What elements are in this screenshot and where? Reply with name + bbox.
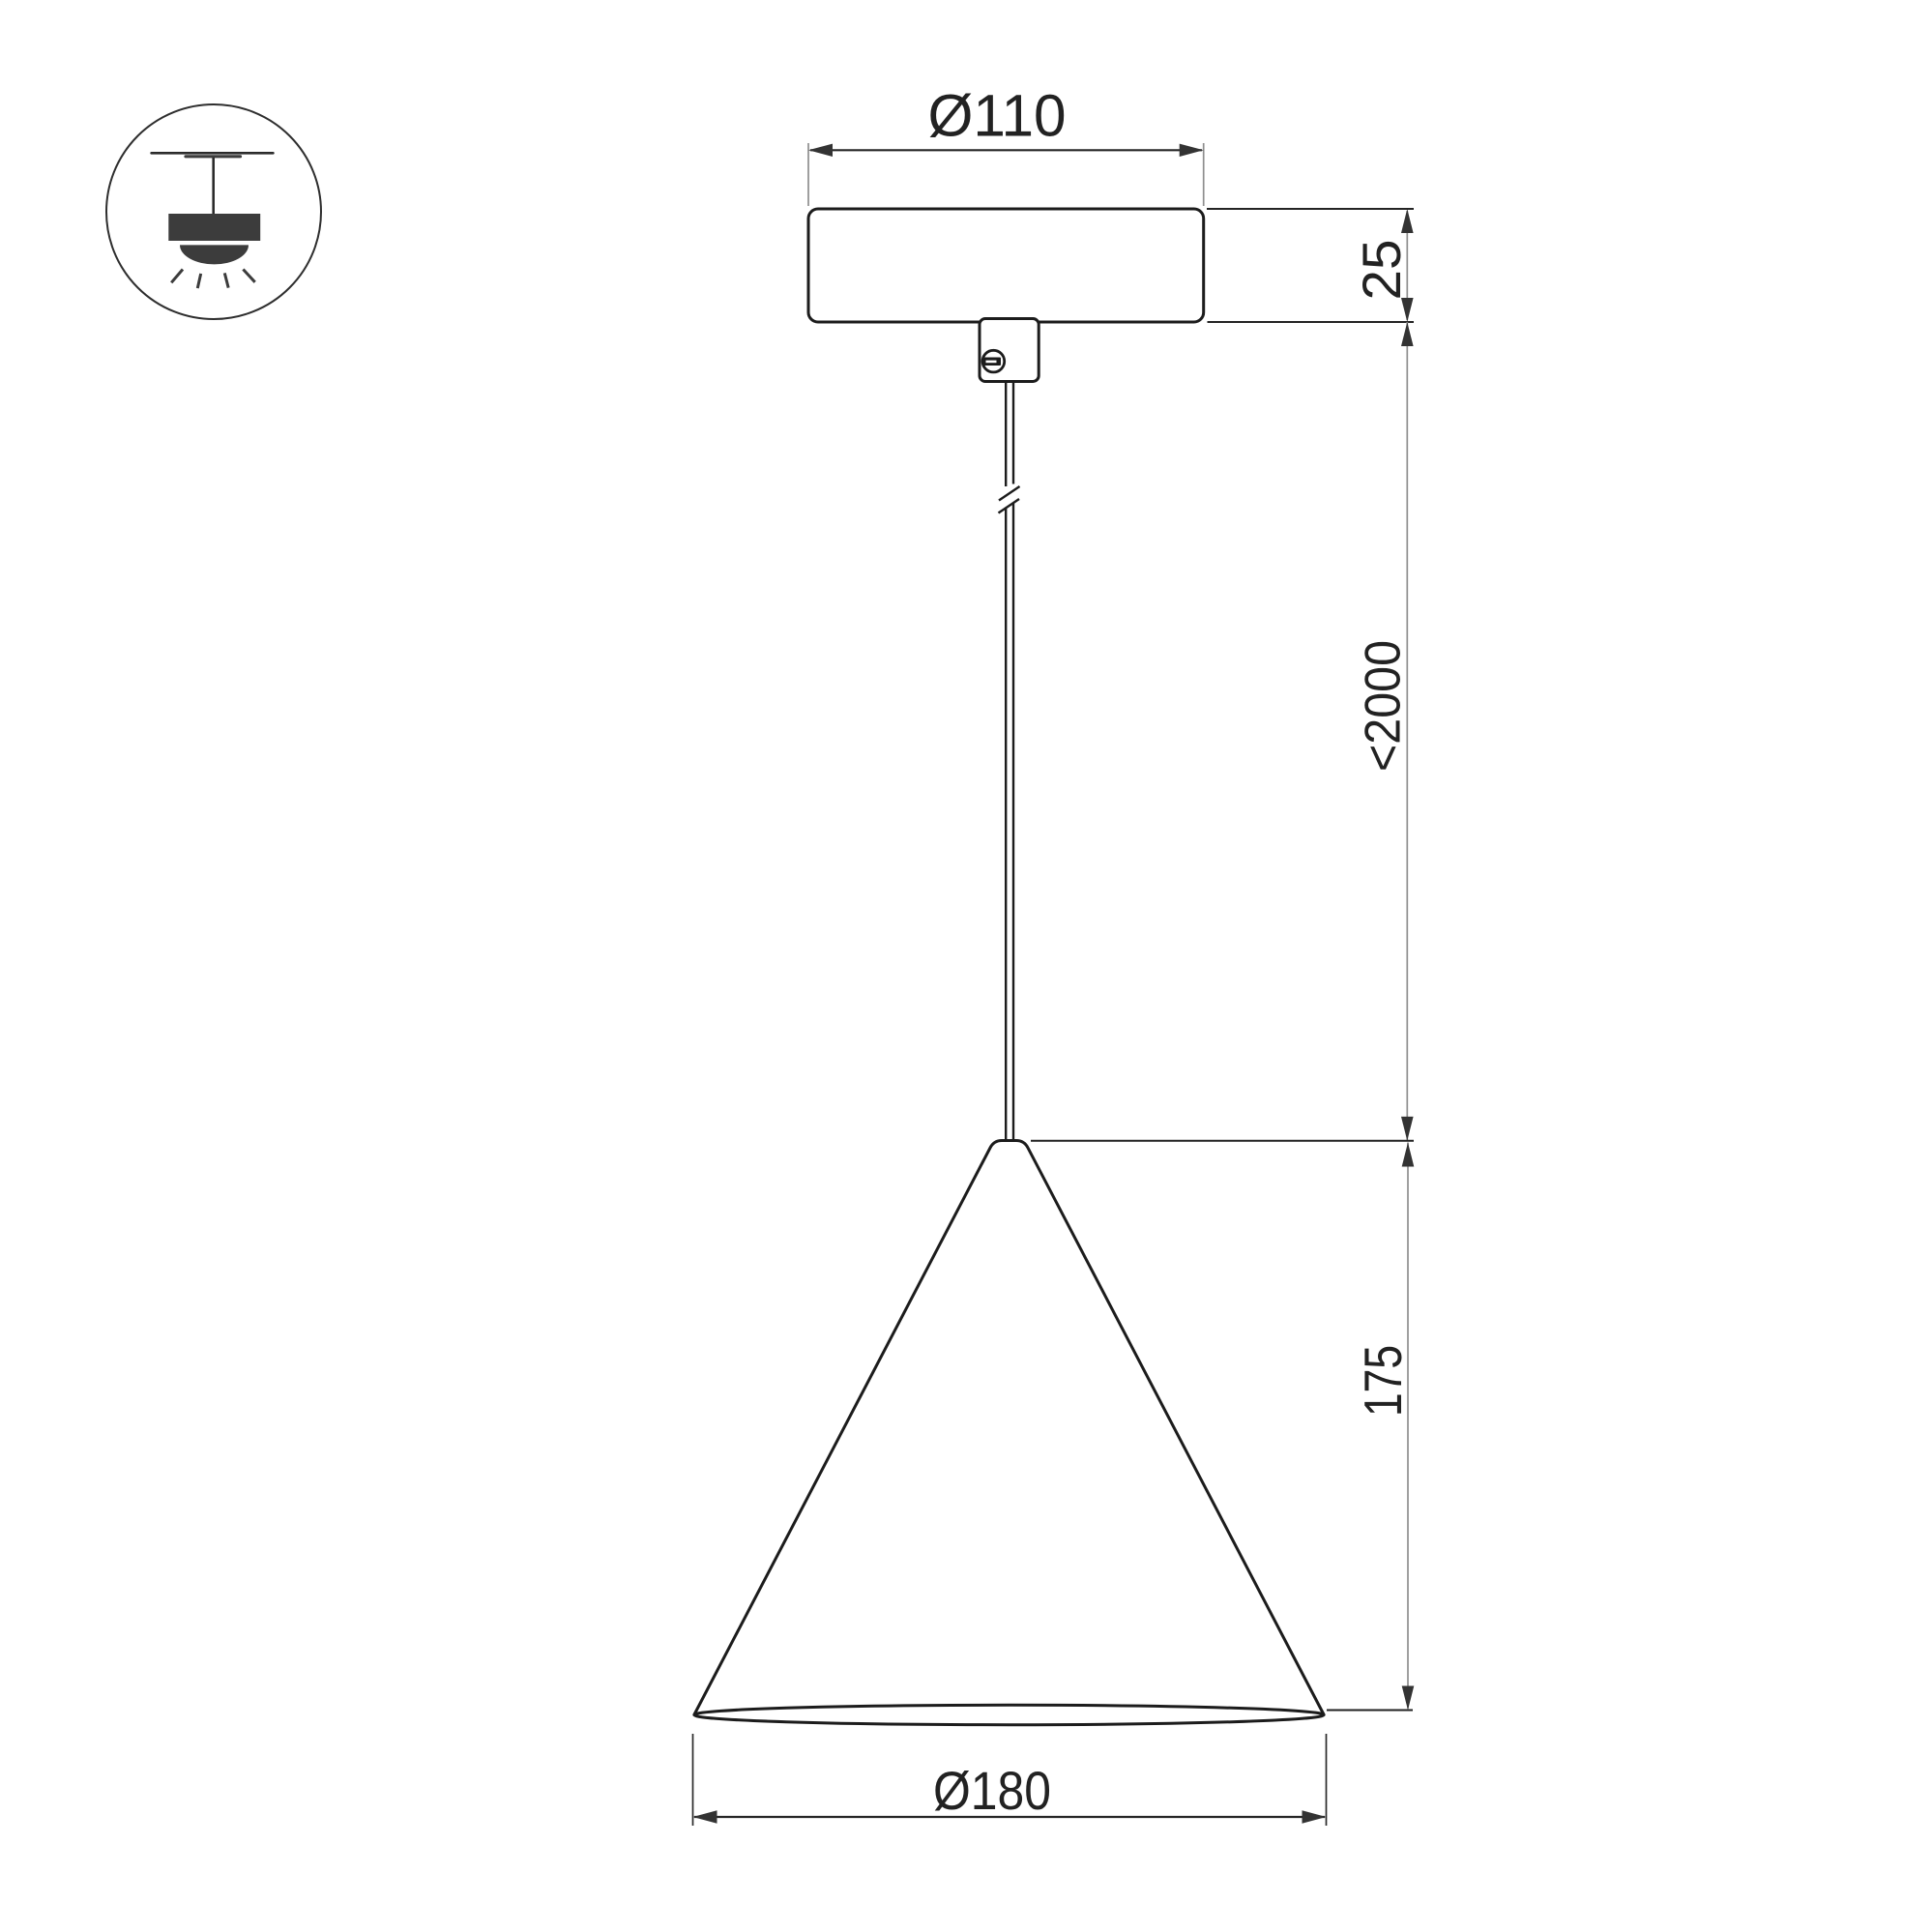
svg-text:25: 25 [1351,240,1412,301]
svg-text:<2000: <2000 [1356,640,1412,772]
svg-text:Ø110: Ø110 [928,83,1067,149]
svg-text:Ø180: Ø180 [933,1760,1051,1821]
svg-text:175: 175 [1353,1345,1413,1417]
